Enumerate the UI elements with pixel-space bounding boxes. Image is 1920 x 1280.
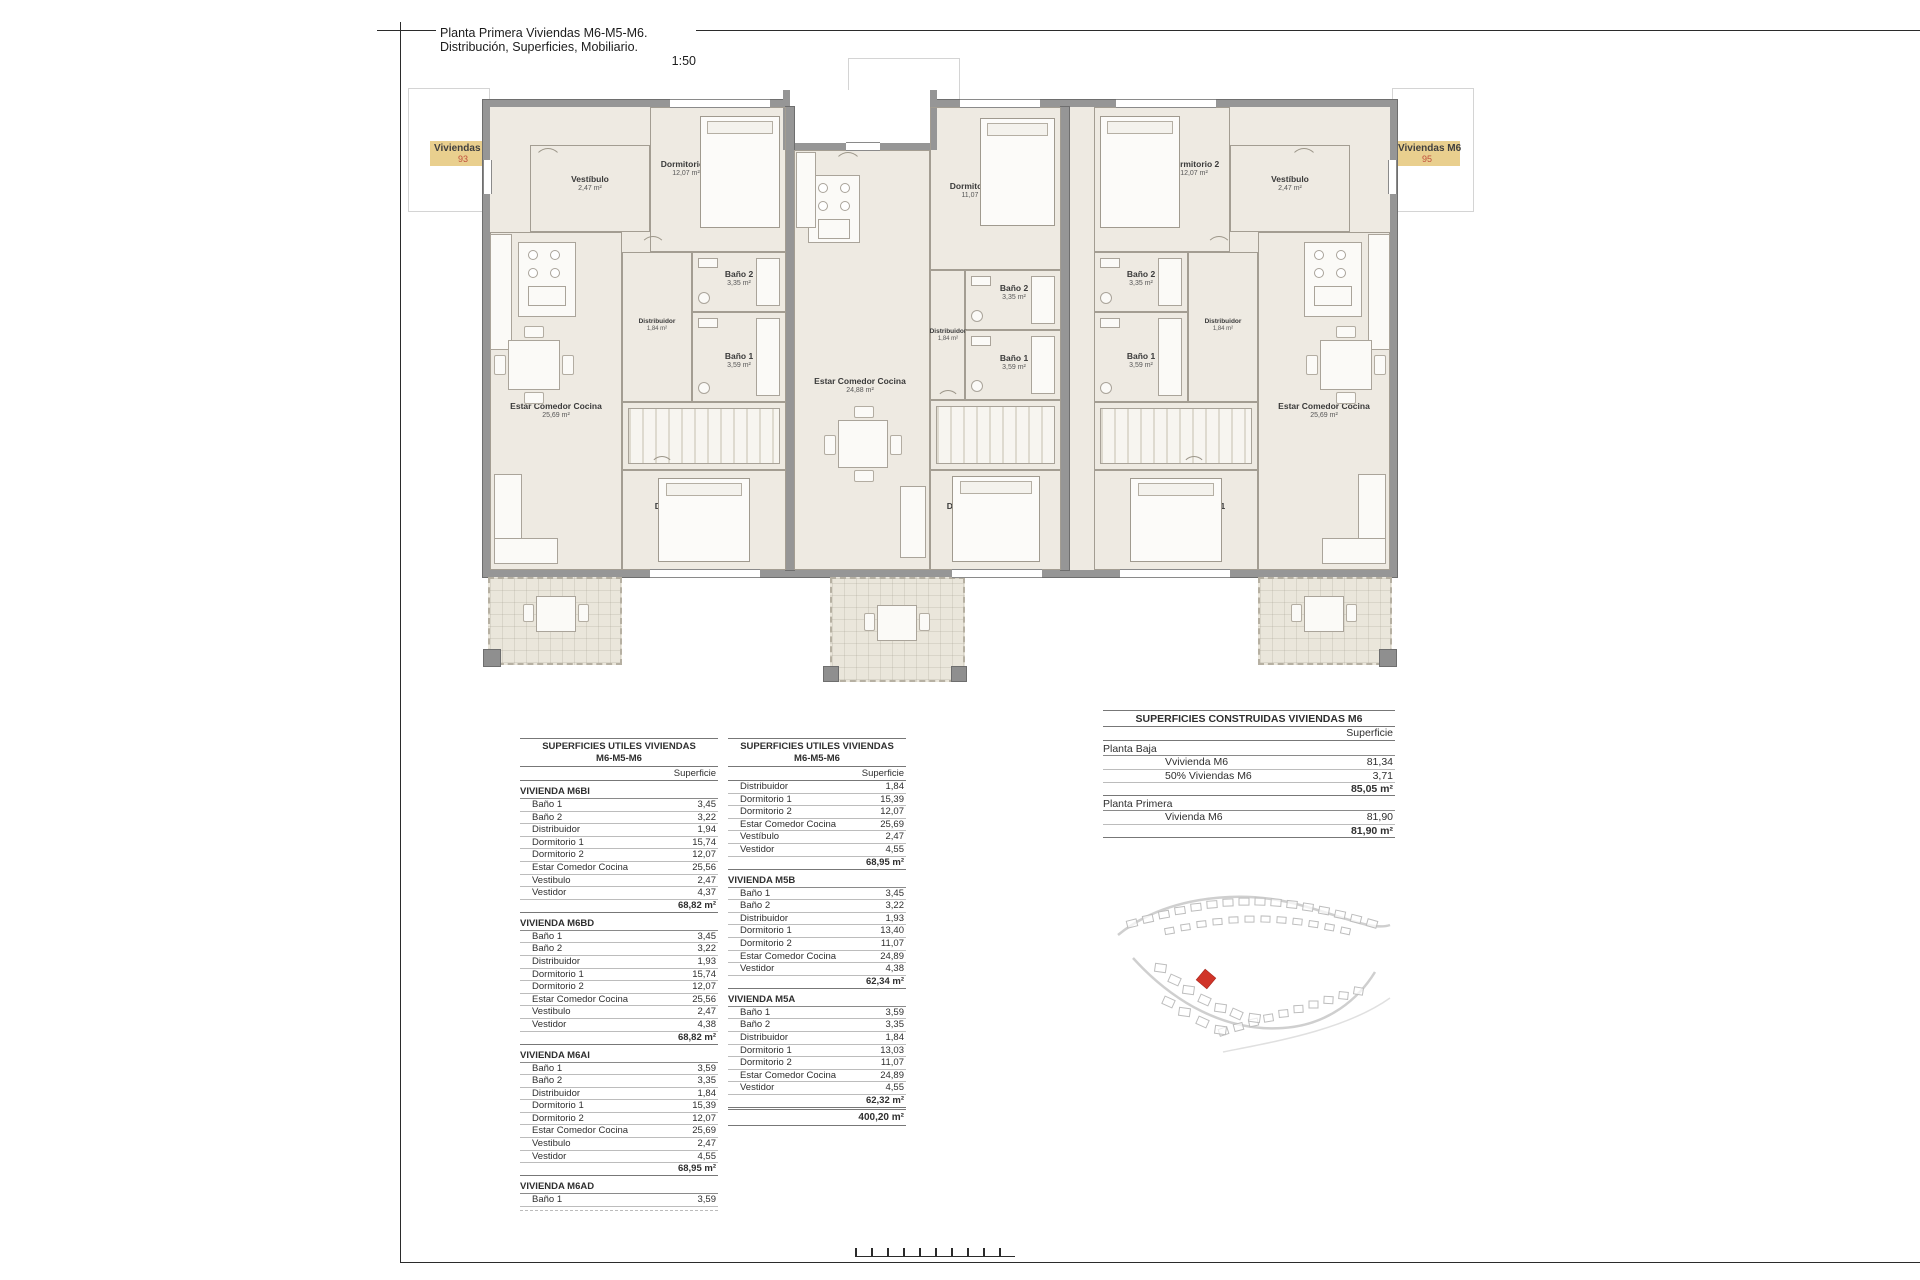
column-header: Superficie — [520, 767, 718, 781]
row-label: Dormitorio 1 — [740, 926, 792, 936]
room-label: Estar Comedor Cocina25,69 m² — [1274, 401, 1374, 419]
chair — [854, 406, 874, 418]
window — [952, 569, 1042, 578]
table-row: Estar Comedor Cocina25,69 — [520, 1125, 718, 1138]
door-swing — [834, 152, 862, 180]
table-cut-off — [520, 1210, 718, 1211]
table-row: Vestidor4,55 — [520, 1151, 718, 1164]
door-swing — [1182, 456, 1206, 480]
bath-sink — [1100, 258, 1120, 268]
row-value: 1,93 — [698, 957, 717, 967]
row-value: 4,55 — [886, 845, 905, 855]
room-name: Estar Comedor Cocina — [1274, 401, 1374, 411]
bed — [1100, 116, 1180, 228]
shower — [1158, 318, 1182, 396]
row-label: Vestidor — [532, 1020, 566, 1030]
terrace-wall-stub — [952, 667, 966, 681]
row-label: Vestidor — [740, 845, 774, 855]
bed — [980, 118, 1055, 226]
kitchen-counter — [796, 152, 816, 228]
frame-bottom-line — [400, 1262, 1920, 1263]
room-label: Vestíbulo2,47 m² — [1240, 174, 1340, 192]
toilet — [1100, 292, 1112, 304]
wardrobe — [628, 408, 780, 464]
chair — [494, 355, 506, 375]
row-value: 3,45 — [698, 932, 717, 942]
row-value: 4,38 — [698, 1020, 717, 1030]
table-row: Dormitorio 115,74 — [520, 969, 718, 982]
row-label: Vestibulo — [532, 1139, 571, 1149]
chair — [524, 392, 544, 404]
dining-table — [508, 340, 560, 390]
vivienda-heading: VIVIENDA M6BD — [520, 917, 718, 931]
table-title-line2: M6-M5-M6 — [520, 753, 718, 765]
row-value: 3,22 — [698, 813, 717, 823]
bath-sink — [698, 318, 718, 328]
wardrobe — [1100, 408, 1252, 464]
table-row: Vestidor4,37 — [520, 887, 718, 900]
row-label: Distribuidor — [740, 914, 788, 924]
room-name: Estar Comedor Cocina — [810, 376, 910, 386]
table-row: Vestidor4,38 — [520, 1019, 718, 1032]
dining-table — [838, 420, 888, 468]
row-label: Baño 1 — [532, 932, 562, 942]
chair — [1291, 604, 1302, 622]
hob-burner — [840, 183, 850, 193]
table-row: Dormitorio 115,39 — [520, 1100, 718, 1113]
table-row: Estar Comedor Cocina25,56 — [520, 862, 718, 875]
room-name: Vestíbulo — [1240, 174, 1340, 184]
row-value: 2,47 — [698, 1139, 717, 1149]
row-value: 3,35 — [698, 1076, 717, 1086]
row-label: Estar Comedor Cocina — [532, 995, 628, 1005]
row-value: 4,38 — [886, 964, 905, 974]
room-name: Distribuidor — [1195, 318, 1251, 325]
chair — [1336, 392, 1356, 404]
room-area: 24,88 m² — [810, 387, 910, 394]
table-row: Vestíbulo2,47 — [728, 831, 906, 844]
row-value: 12,07 — [880, 807, 904, 817]
chair — [1336, 326, 1356, 338]
row-label: Distribuidor — [532, 825, 580, 835]
table-row: Dormitorio 211,07 — [728, 938, 906, 951]
room-label: Estar Comedor Cocina24,88 m² — [810, 376, 910, 394]
table-row: Distribuidor1,84 — [728, 781, 906, 794]
bath-sink — [971, 336, 991, 346]
room-area: 25,69 m² — [506, 412, 606, 419]
row-label: Estar Comedor Cocina — [740, 1071, 836, 1081]
hob-burner — [1314, 250, 1324, 260]
row-label: Baño 1 — [532, 1195, 562, 1205]
hob-burner — [550, 250, 560, 260]
table-row: Baño 23,35 — [728, 1019, 906, 1032]
chair — [1374, 355, 1386, 375]
hob-burner — [818, 201, 828, 211]
table-title-line1: SUPERFICIES UTILES VIVIENDAS — [728, 741, 906, 753]
row-value: 2,47 — [698, 876, 717, 886]
window — [1120, 569, 1230, 578]
shower — [1158, 258, 1182, 306]
bed — [700, 116, 780, 228]
chair — [1306, 355, 1318, 375]
table-row: Dormitorio 212,07 — [520, 1113, 718, 1126]
row-value: 12,07 — [692, 1114, 716, 1124]
toilet — [698, 292, 710, 304]
row-value: 3,35 — [886, 1020, 905, 1030]
vivienda-subtotal: 68,82 m² — [520, 1032, 718, 1045]
row-label: Vestibulo — [532, 876, 571, 886]
room-label: Estar Comedor Cocina25,69 m² — [506, 401, 606, 419]
room-name: Vestíbulo — [540, 174, 640, 184]
table-row: Baño 13,59 — [520, 1063, 718, 1076]
terrace-wall-stub — [484, 650, 500, 666]
table-row: Estar Comedor Cocina24,89 — [728, 1070, 906, 1083]
table-row: Baño 23,22 — [520, 812, 718, 825]
table-row: Vivienda M681,90 — [1103, 811, 1395, 825]
table-row: Dormitorio 212,07 — [520, 849, 718, 862]
row-value: 3,59 — [886, 1008, 905, 1018]
table-row: Baño 13,59 — [728, 1007, 906, 1020]
row-label: Dormitorio 2 — [740, 1058, 792, 1068]
row-value: 13,03 — [880, 1046, 904, 1056]
row-value: 12,07 — [692, 982, 716, 992]
table-row: Baño 13,45 — [520, 931, 718, 944]
grand-total: 400,20 m² — [728, 1109, 906, 1126]
table-row: Baño 13,45 — [520, 799, 718, 812]
window — [670, 99, 770, 108]
dining-table — [1320, 340, 1372, 390]
row-label: Vestidor — [740, 964, 774, 974]
kitchen-sink — [818, 219, 850, 239]
row-value: 2,47 — [886, 832, 905, 842]
window — [1116, 99, 1216, 108]
sofa — [1322, 538, 1386, 564]
table-row: Distribuidor1,94 — [520, 824, 718, 837]
planta-heading: Planta Baja — [1103, 742, 1395, 756]
row-label: Vestidor — [532, 1152, 566, 1162]
row-label: Baño 2 — [532, 813, 562, 823]
room-label: Vestíbulo2,47 m² — [540, 174, 640, 192]
room-label: Distribuidor1,84 m² — [1195, 318, 1251, 332]
vivienda-heading: VIVIENDA M6AI — [520, 1049, 718, 1063]
door-swing — [650, 456, 674, 480]
room-area: 2,47 m² — [1240, 185, 1340, 192]
row-label: Vivienda M6 — [1165, 812, 1223, 823]
entry-door-opening — [846, 142, 880, 151]
row-label: Baño 1 — [740, 889, 770, 899]
door-swing — [640, 236, 666, 262]
row-value: 13,40 — [880, 926, 904, 936]
row-value: 1,84 — [698, 1089, 717, 1099]
table-title-line2: M6-M5-M6 — [728, 753, 906, 765]
chair — [1346, 604, 1357, 622]
hob-burner — [528, 250, 538, 260]
entry-court — [1392, 88, 1474, 212]
table-row: Dormitorio 115,74 — [520, 837, 718, 850]
row-value: 3,22 — [698, 944, 717, 954]
table-row: Dormitorio 212,07 — [520, 981, 718, 994]
party-wall — [1061, 107, 1069, 570]
kitchen-sink — [1314, 286, 1352, 306]
row-label: Dormitorio 2 — [532, 850, 584, 860]
sheet-title: Planta Primera Viviendas M6-M5-M6. Distr… — [440, 26, 696, 54]
row-label: Baño 1 — [532, 1064, 562, 1074]
entry-door-opening — [483, 160, 492, 194]
row-label: Vestibulo — [532, 1007, 571, 1017]
surface-table-utiles-2: SUPERFICIES UTILES VIVIENDASM6-M5-M6Supe… — [728, 738, 906, 1126]
bed — [1130, 478, 1222, 562]
row-value: 25,69 — [692, 1126, 716, 1136]
toilet — [971, 380, 983, 392]
row-value: 1,94 — [698, 825, 717, 835]
table-row: Estar Comedor Cocina25,56 — [520, 994, 718, 1007]
terrace-table — [536, 596, 576, 632]
row-label: Estar Comedor Cocina — [532, 1126, 628, 1136]
row-label: Estar Comedor Cocina — [532, 863, 628, 873]
table-row: Baño 13,45 — [728, 888, 906, 901]
shower — [1031, 336, 1055, 394]
party-wall — [786, 107, 794, 570]
room-area: 1,84 m² — [629, 326, 685, 332]
row-value: 1,93 — [886, 914, 905, 924]
table-row: Baño 13,59 — [520, 1194, 718, 1207]
row-value: 15,39 — [692, 1101, 716, 1111]
row-label: 50% Viviendas M6 — [1165, 771, 1252, 782]
hob-burner — [550, 268, 560, 278]
row-label: Dormitorio 2 — [532, 982, 584, 992]
hob-burner — [840, 201, 850, 211]
row-value: 11,07 — [881, 939, 904, 949]
bed — [952, 476, 1040, 562]
room-area: 1,84 m² — [1195, 326, 1251, 332]
bath-sink — [1100, 318, 1120, 328]
table-row: Vestidor4,55 — [728, 844, 906, 857]
planta-heading: Planta Primera — [1103, 797, 1395, 811]
shower — [756, 258, 780, 306]
kitchen-sink — [528, 286, 566, 306]
row-value: 3,45 — [886, 889, 905, 899]
surface-table-utiles-1: SUPERFICIES UTILES VIVIENDASM6-M5-M6Supe… — [520, 738, 718, 1211]
row-label: Dormitorio 1 — [740, 795, 792, 805]
room-area: 2,47 m² — [540, 185, 640, 192]
vivienda-subtotal: 68,82 m² — [520, 900, 718, 913]
hob-burner — [1314, 268, 1324, 278]
chair — [864, 613, 875, 631]
room-name: Estar Comedor Cocina — [506, 401, 606, 411]
row-label: Vestíbulo — [740, 832, 779, 842]
scale-bar — [855, 1248, 1015, 1257]
row-value: 3,71 — [1373, 771, 1393, 782]
room-name: Distribuidor — [629, 318, 685, 325]
terrace-table — [877, 605, 917, 641]
window — [960, 99, 1040, 108]
vivienda-heading: VIVIENDA M6BI — [520, 785, 718, 799]
table-title: SUPERFICIES UTILES VIVIENDASM6-M5-M6 — [728, 738, 906, 767]
chair — [919, 613, 930, 631]
table-row: Estar Comedor Cocina25,69 — [728, 819, 906, 832]
bed — [658, 478, 750, 562]
bath-sink — [698, 258, 718, 268]
table-row: Baño 23,22 — [728, 900, 906, 913]
row-value: 15,74 — [692, 838, 716, 848]
surface-table-construidas: SUPERFICIES CONSTRUIDAS VIVIENDAS M6Supe… — [1103, 710, 1395, 838]
row-label: Distribuidor — [740, 782, 788, 792]
wardrobe — [936, 406, 1055, 464]
row-label: Dormitorio 2 — [532, 1114, 584, 1124]
chair — [854, 470, 874, 482]
entry-recess — [783, 90, 937, 150]
table-row: Dormitorio 212,07 — [728, 806, 906, 819]
entry-court — [408, 88, 490, 212]
row-label: Baño 2 — [532, 944, 562, 954]
row-label: Dormitorio 2 — [740, 807, 792, 817]
row-value: 81,34 — [1367, 757, 1393, 768]
row-label: Distribuidor — [532, 1089, 580, 1099]
row-value: 15,74 — [692, 970, 716, 980]
hob-burner — [1336, 250, 1346, 260]
planta-subtotal: 81,90 m² — [1103, 825, 1395, 838]
hob-burner — [1336, 268, 1346, 278]
hob-burner — [528, 268, 538, 278]
chair — [824, 435, 836, 455]
table-row: Baño 23,22 — [520, 943, 718, 956]
vivienda-heading: VIVIENDA M6AD — [520, 1180, 718, 1194]
row-label: Vestidor — [532, 888, 566, 898]
chair — [578, 604, 589, 622]
frame-top-line-right — [696, 30, 1920, 31]
toilet — [971, 310, 983, 322]
row-label: Dormitorio 2 — [740, 939, 792, 949]
row-label: Dormitorio 1 — [532, 970, 584, 980]
chair — [524, 326, 544, 338]
sheet-scale: 1:50 — [440, 54, 696, 68]
table-row: Baño 23,35 — [520, 1075, 718, 1088]
row-label: Baño 1 — [740, 1008, 770, 1018]
row-label: Distribuidor — [740, 1033, 788, 1043]
row-value: 4,37 — [698, 888, 717, 898]
column-header: Superficie — [1103, 727, 1395, 741]
frame-top-line-left — [377, 30, 436, 31]
vivienda-subtotal: 62,34 m² — [728, 976, 906, 989]
kitchen-counter — [490, 234, 512, 350]
table-row: Dormitorio 115,39 — [728, 794, 906, 807]
table-title: SUPERFICIES CONSTRUIDAS VIVIENDAS M6 — [1103, 710, 1395, 727]
row-value: 4,55 — [698, 1152, 717, 1162]
table-title: SUPERFICIES UTILES VIVIENDASM6-M5-M6 — [520, 738, 718, 767]
table-row: Dormitorio 211,07 — [728, 1057, 906, 1070]
window — [650, 569, 760, 578]
row-label: Vestidor — [740, 1083, 774, 1093]
toilet — [1100, 382, 1112, 394]
table-row: Vestidor4,55 — [728, 1082, 906, 1095]
door-swing — [1290, 148, 1318, 176]
chair — [523, 604, 534, 622]
table-row: Vestibulo2,47 — [520, 1006, 718, 1019]
room-area: 25,69 m² — [1274, 412, 1374, 419]
room-label: Distribuidor1,84 m² — [629, 318, 685, 332]
row-value: 24,89 — [880, 1071, 904, 1081]
row-value: 1,84 — [886, 782, 905, 792]
terrace-wall-stub — [824, 667, 838, 681]
table-row: Distribuidor1,93 — [520, 956, 718, 969]
row-value: 15,39 — [880, 795, 904, 805]
vivienda-subtotal: 68,95 m² — [520, 1163, 718, 1176]
vivienda-heading: VIVIENDA M5B — [728, 874, 906, 888]
row-value: 4,55 — [886, 1083, 905, 1093]
row-value: 3,22 — [886, 901, 905, 911]
row-value: 2,47 — [698, 1007, 717, 1017]
title-block: Planta Primera Viviendas M6-M5-M6. Distr… — [440, 26, 696, 68]
table-row: Dormitorio 113,40 — [728, 925, 906, 938]
row-value: 25,56 — [692, 995, 716, 1005]
row-value: 12,07 — [692, 850, 716, 860]
table-row: Vvivienda M681,34 — [1103, 756, 1395, 770]
row-value: 25,69 — [880, 820, 904, 830]
table-row: Vestidor4,38 — [728, 963, 906, 976]
table-row: Estar Comedor Cocina24,89 — [728, 951, 906, 964]
row-label: Dormitorio 1 — [532, 1101, 584, 1111]
floor-plan: Vestíbulo2,47 m²Dormitorio 212,07 m²Baño… — [400, 90, 1520, 740]
row-value: 3,59 — [698, 1195, 717, 1205]
row-label: Estar Comedor Cocina — [740, 820, 836, 830]
row-value: 81,90 — [1367, 812, 1393, 823]
row-label: Baño 2 — [740, 901, 770, 911]
kitchen-counter — [1368, 234, 1390, 350]
row-value: 1,84 — [886, 1033, 905, 1043]
bath-sink — [971, 276, 991, 286]
table-row: 50% Viviendas M63,71 — [1103, 770, 1395, 784]
terrace-wall-stub — [1380, 650, 1396, 666]
vivienda-subtotal: 68,95 m² — [728, 857, 906, 870]
row-label: Estar Comedor Cocina — [740, 952, 836, 962]
shower — [756, 318, 780, 396]
row-value: 11,07 — [881, 1058, 904, 1068]
door-swing — [1206, 236, 1232, 262]
site-map — [1103, 880, 1395, 1060]
row-value: 3,45 — [698, 800, 717, 810]
column-header: Superficie — [728, 767, 906, 781]
planta-subtotal: 85,05 m² — [1103, 783, 1395, 796]
row-label: Dormitorio 1 — [532, 838, 584, 848]
row-label: Dormitorio 1 — [740, 1046, 792, 1056]
row-label: Vvivienda M6 — [1165, 757, 1228, 768]
door-swing — [936, 390, 960, 414]
table-title-line1: SUPERFICIES UTILES VIVIENDAS — [520, 741, 718, 753]
table-row: Dormitorio 113,03 — [728, 1045, 906, 1058]
hob-burner — [818, 183, 828, 193]
sofa — [494, 538, 558, 564]
vivienda-heading: VIVIENDA M5A — [728, 993, 906, 1007]
vivienda-subtotal: 62,32 m² — [728, 1095, 906, 1108]
row-value: 25,56 — [692, 863, 716, 873]
sofa — [900, 486, 926, 558]
row-label: Baño 1 — [532, 800, 562, 810]
table-row: Distribuidor1,84 — [520, 1088, 718, 1101]
row-label: Baño 2 — [740, 1020, 770, 1030]
chair — [890, 435, 902, 455]
toilet — [698, 382, 710, 394]
row-value: 24,89 — [880, 952, 904, 962]
table-row: Distribuidor1,93 — [728, 913, 906, 926]
table-row: Distribuidor1,84 — [728, 1032, 906, 1045]
row-label: Baño 2 — [532, 1076, 562, 1086]
highlighted-plot — [1196, 969, 1216, 989]
row-value: 3,59 — [698, 1064, 717, 1074]
entry-door-opening — [1388, 160, 1397, 194]
chair — [562, 355, 574, 375]
terrace-table — [1304, 596, 1344, 632]
table-row: Vestibulo2,47 — [520, 1138, 718, 1151]
